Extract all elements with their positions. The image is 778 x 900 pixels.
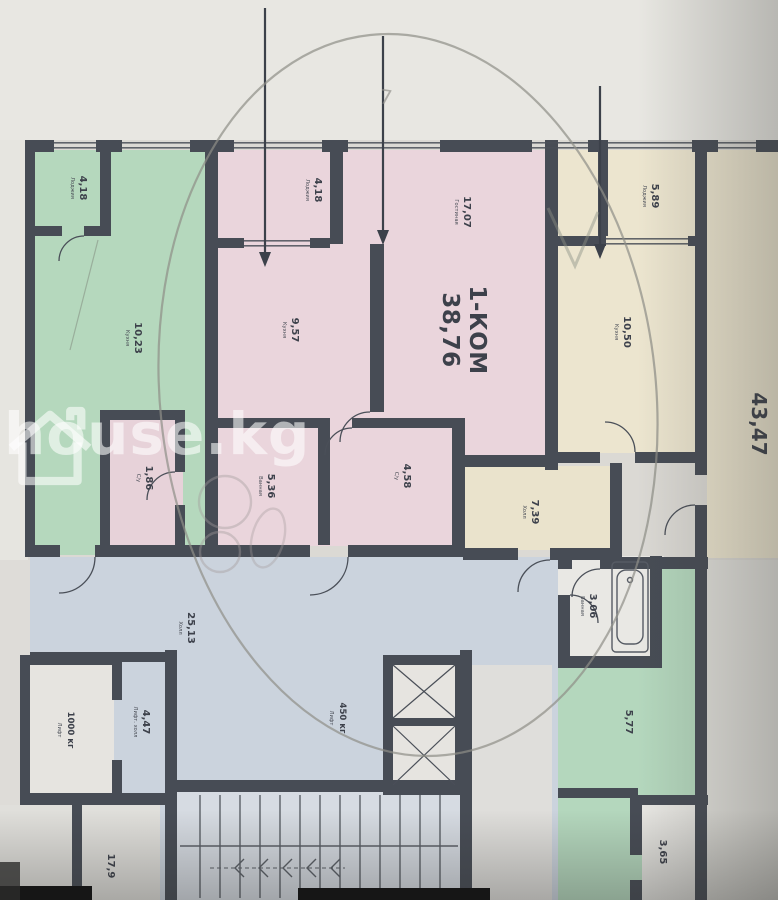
black-bar-center	[298, 888, 490, 900]
black-corner	[0, 862, 20, 900]
floor-plan-svg: 7 4,18 Лоджия 10,23 Кухня 1,86 С/у 4,18 …	[0, 0, 778, 900]
floor-plan-photo: 7 4,18 Лоджия 10,23 Кухня 1,86 С/у 4,18 …	[0, 0, 778, 900]
photo-edges	[0, 0, 778, 900]
